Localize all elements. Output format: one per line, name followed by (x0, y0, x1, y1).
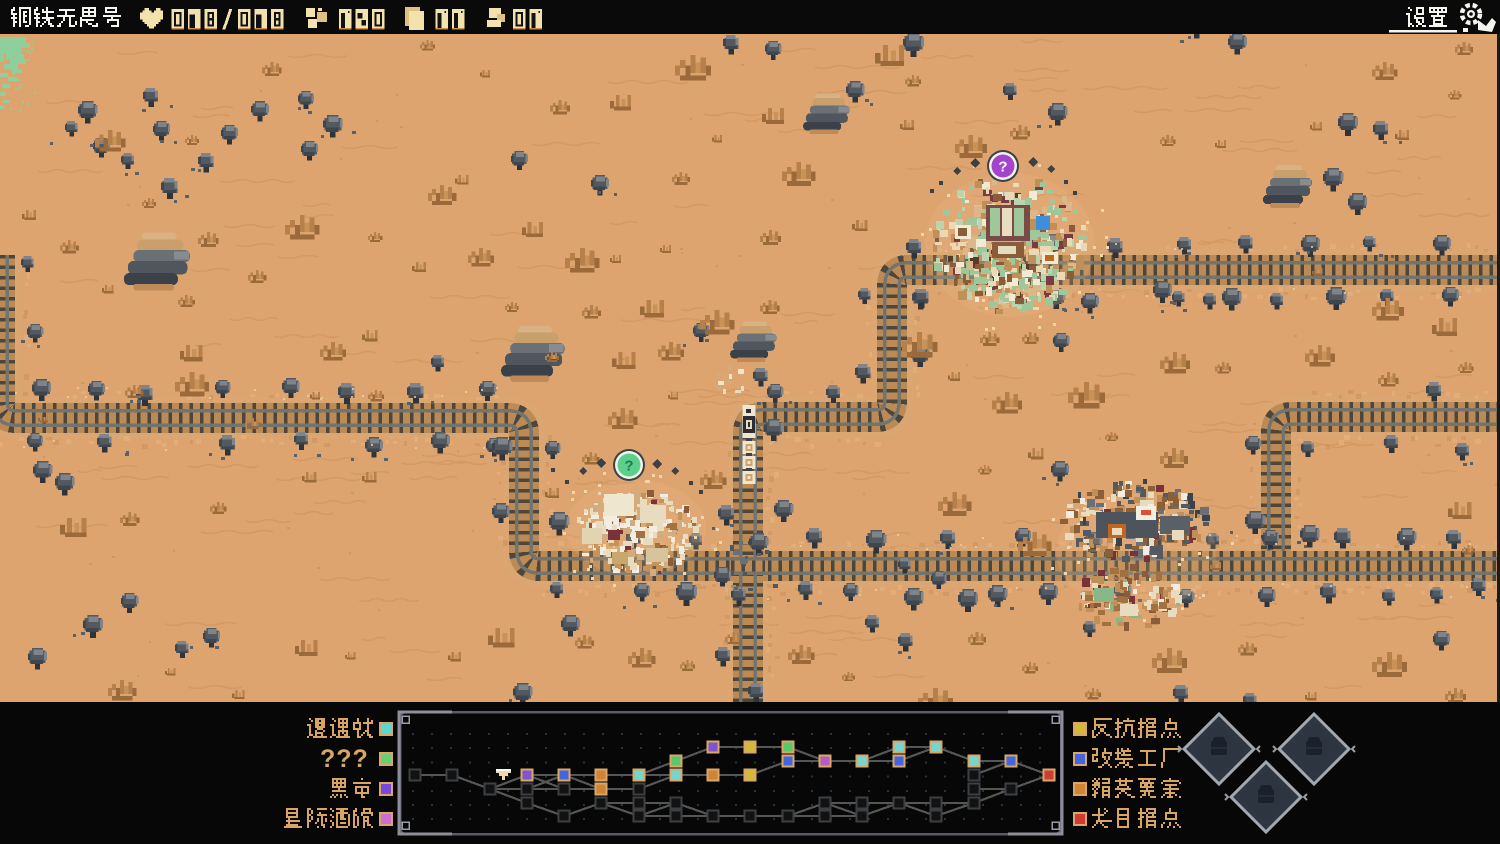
svg-text:???: ??? (320, 745, 369, 773)
svg-text:?: ? (624, 458, 633, 475)
svg-text:?: ? (998, 159, 1007, 176)
